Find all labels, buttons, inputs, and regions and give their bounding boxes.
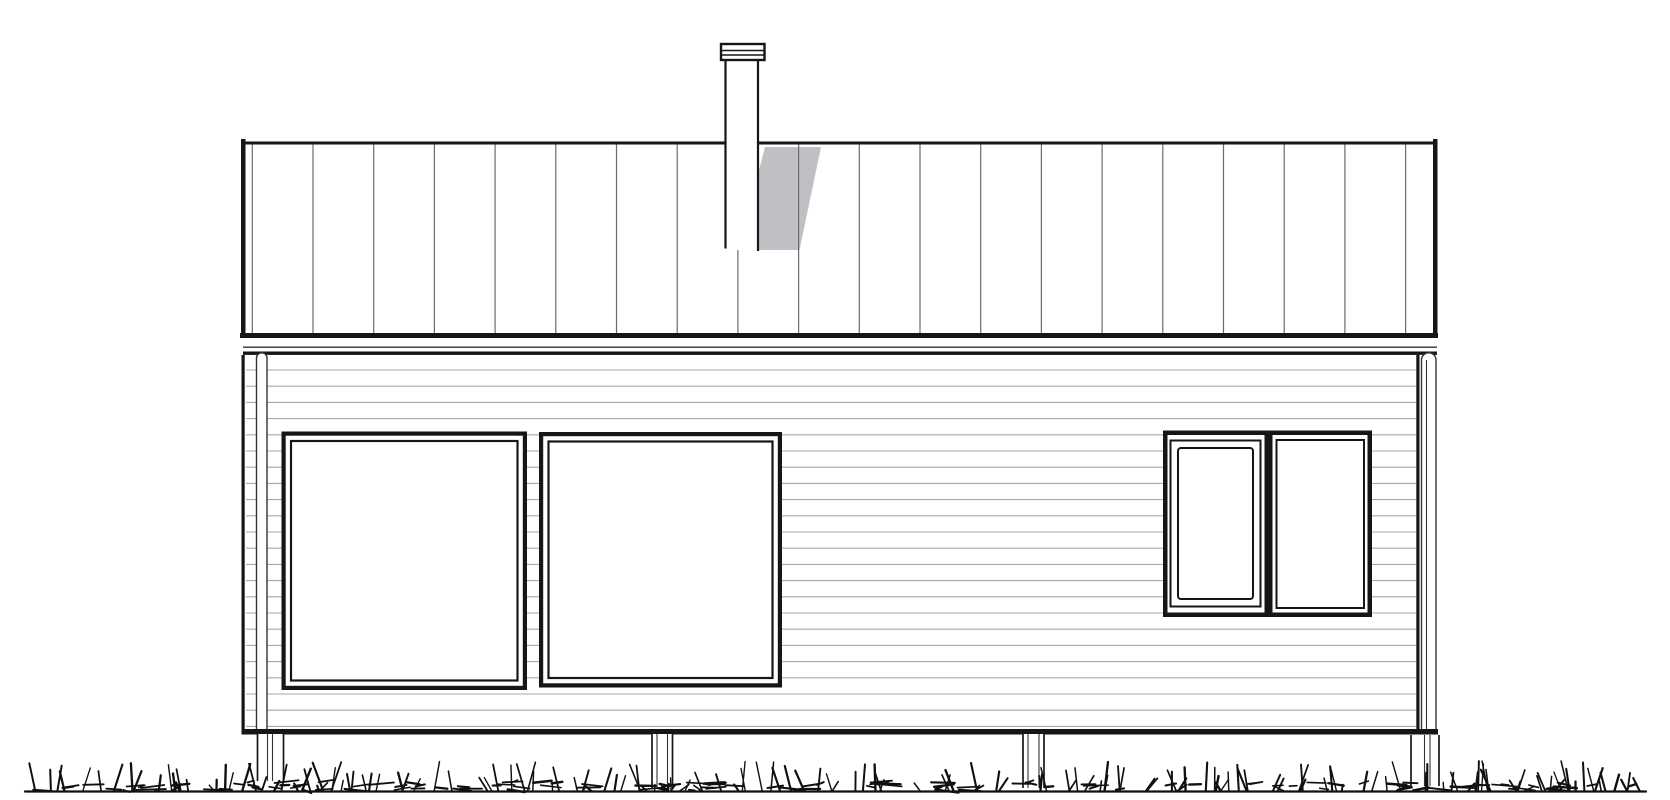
grass-stroke [1478,761,1479,791]
grass-stroke [958,787,978,788]
grass-stroke [50,770,51,791]
grass-stroke [689,790,695,791]
grass-stroke [1398,785,1410,786]
grass-stroke [136,789,157,790]
roof-ridge-edge [242,142,1438,145]
grass-stroke [1426,773,1427,791]
grass-stroke [552,782,562,784]
grass-stroke [875,764,876,791]
grass-stroke [498,784,515,785]
window-right-fixed-pane [1277,440,1365,608]
grass-stroke [879,784,896,785]
grass-stroke [1206,763,1207,791]
grass-stroke [1554,787,1577,789]
fascia-bottom-bar [243,352,1437,355]
grass-stroke [436,787,448,788]
grass-stroke [1403,783,1417,784]
window-large-center-glass [550,443,772,677]
foundation-post-fill [652,734,673,788]
chimney-pipe-fill [725,60,760,250]
eave-edge-bar [240,333,1438,338]
grass-stroke [1583,763,1584,792]
downspout-right [1422,353,1437,734]
wall-edge-right [1416,355,1419,735]
foundation-post-fill [258,734,284,781]
wall-edge-left [242,355,245,735]
fascia-thin-line [243,347,1437,348]
grass-stroke [33,790,52,791]
grass-stroke [702,787,716,788]
grass-stroke [1307,782,1326,783]
chimney-cap-fill [721,44,765,60]
window-right-mullion [1265,435,1273,613]
grass-stroke [1273,785,1283,786]
grass-stroke [204,789,227,790]
grass-stroke [687,783,710,784]
grass-stroke [511,765,512,791]
grass-stroke [63,787,73,788]
roof-verge-left [241,139,246,338]
grass-stroke [533,771,534,791]
roof-verge-right [1433,139,1438,338]
elevation-drawing [0,0,1670,800]
grass-stroke [458,786,470,787]
grass-stroke [1228,772,1229,791]
grass-stroke [225,765,226,791]
grass-stroke [1039,776,1040,791]
grass-stroke [1116,788,1124,789]
wall-bottom-bar [242,729,1438,735]
grass-stroke [1501,785,1508,786]
window-right-left-sash-inner [1178,448,1253,599]
downspout-left [257,353,268,733]
architectural-elevation-image [0,0,1670,800]
window-large-left-glass [292,442,516,679]
